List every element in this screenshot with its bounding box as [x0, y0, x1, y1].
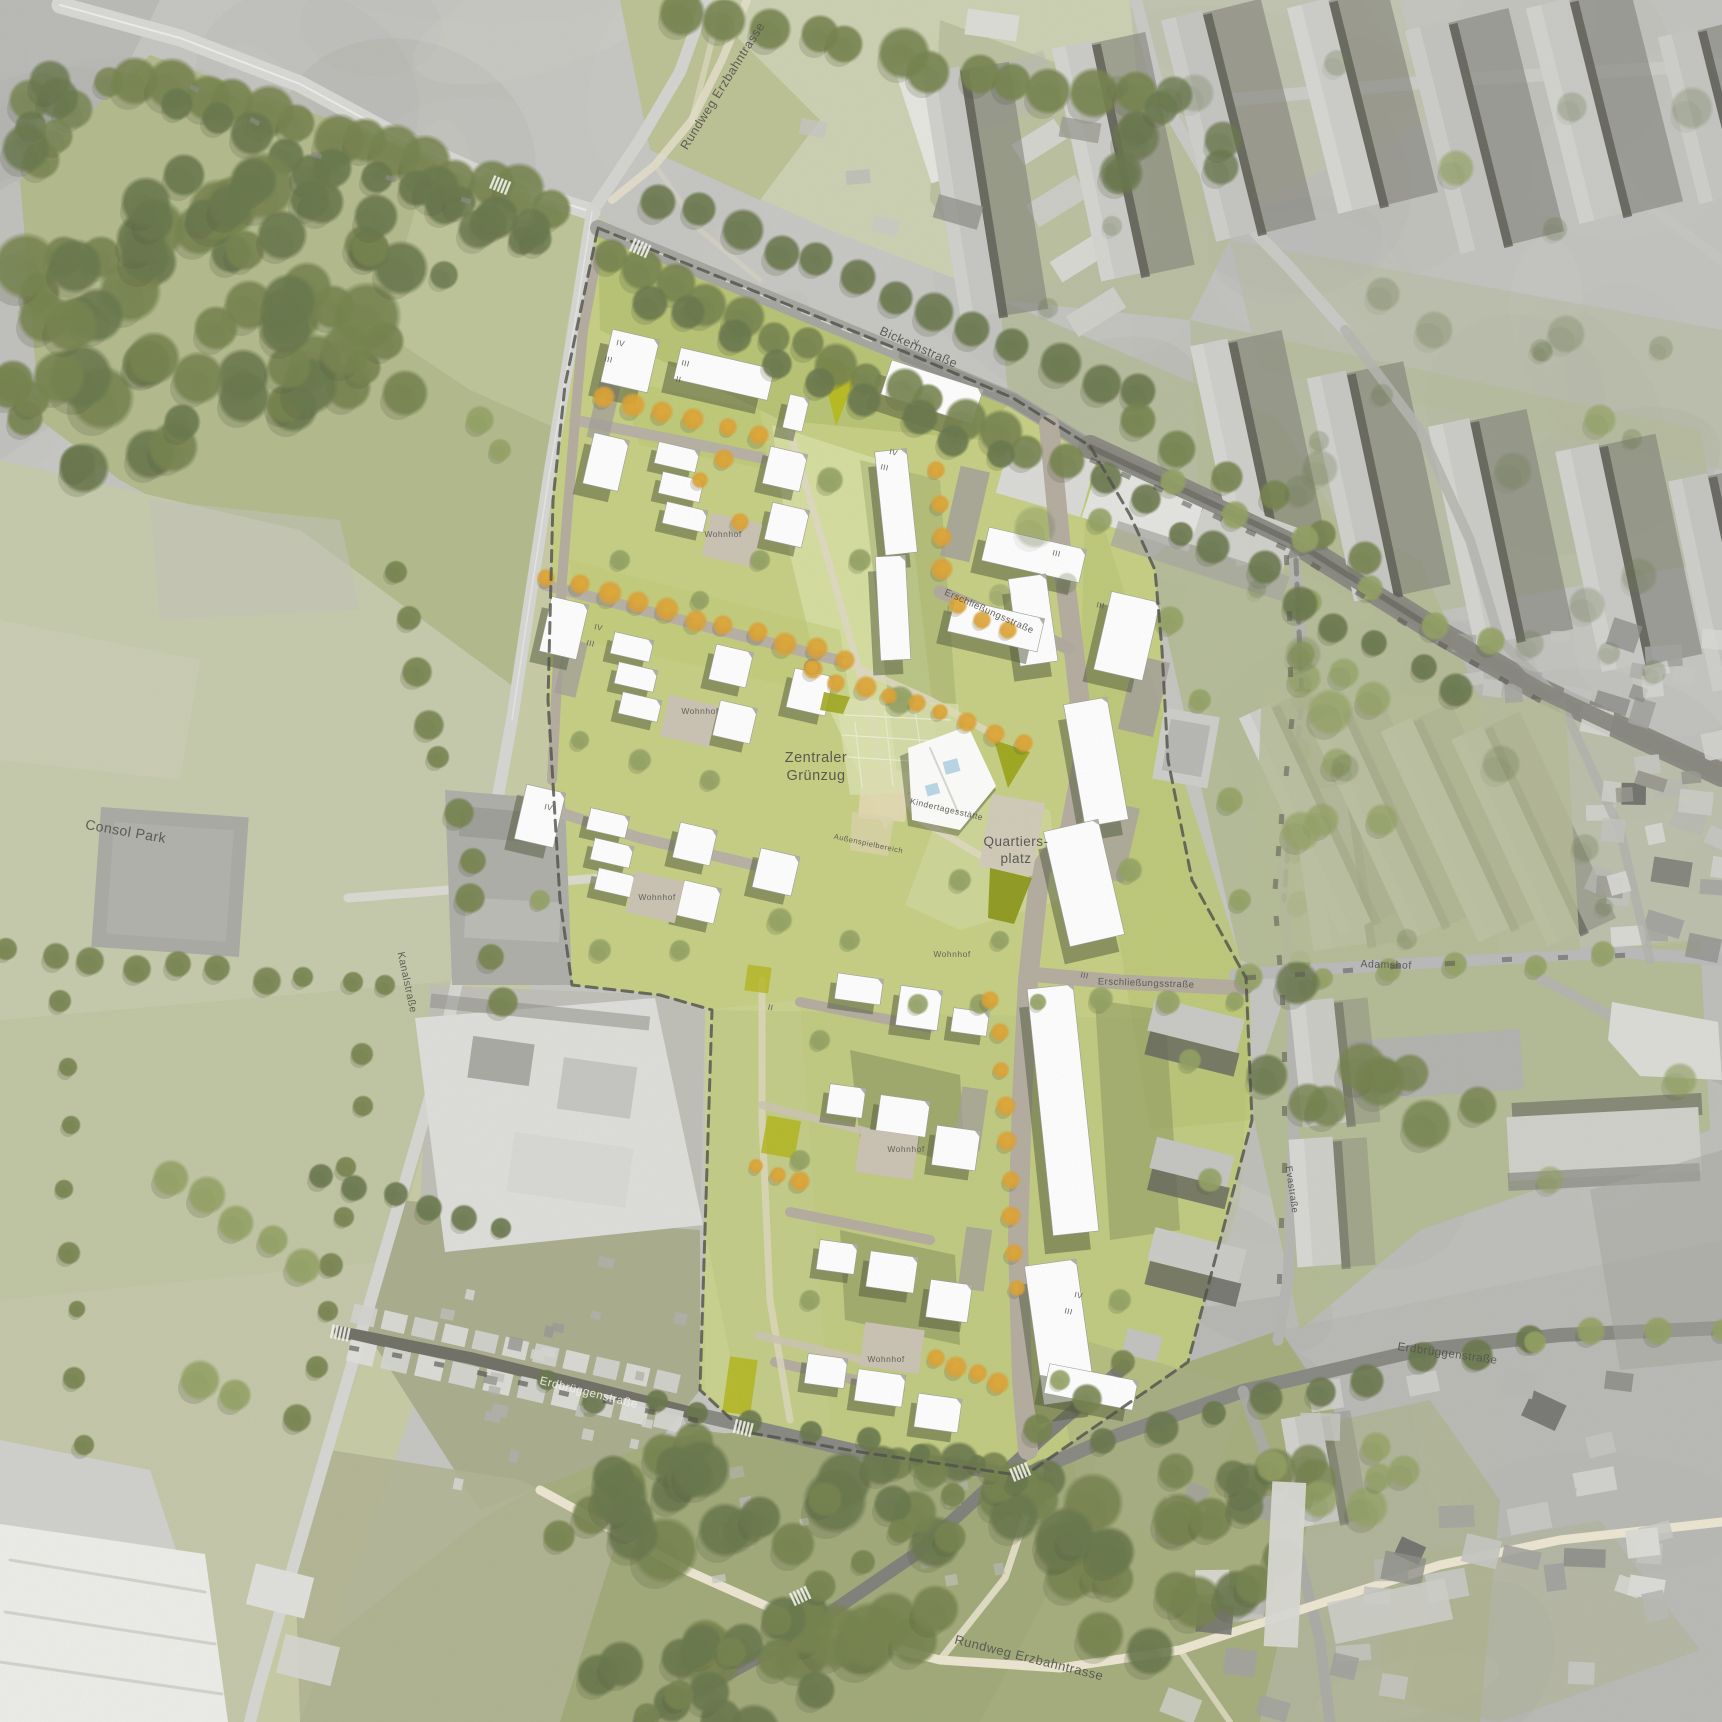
- svg-text:Wohnhof: Wohnhof: [933, 949, 971, 959]
- svg-text:Wohnhof: Wohnhof: [704, 529, 742, 539]
- svg-text:Quartiers-: Quartiers-: [983, 834, 1048, 849]
- svg-text:Wohnhof: Wohnhof: [638, 892, 676, 902]
- svg-text:Grünzug: Grünzug: [786, 768, 845, 784]
- svg-text:Wohnhof: Wohnhof: [867, 1354, 905, 1364]
- svg-text:Zentraler: Zentraler: [785, 750, 848, 766]
- svg-text:platz: platz: [1000, 851, 1031, 866]
- svg-text:Wohnhof: Wohnhof: [887, 1144, 925, 1154]
- svg-text:Adamshof: Adamshof: [1360, 958, 1412, 972]
- svg-text:Wohnhof: Wohnhof: [681, 706, 719, 716]
